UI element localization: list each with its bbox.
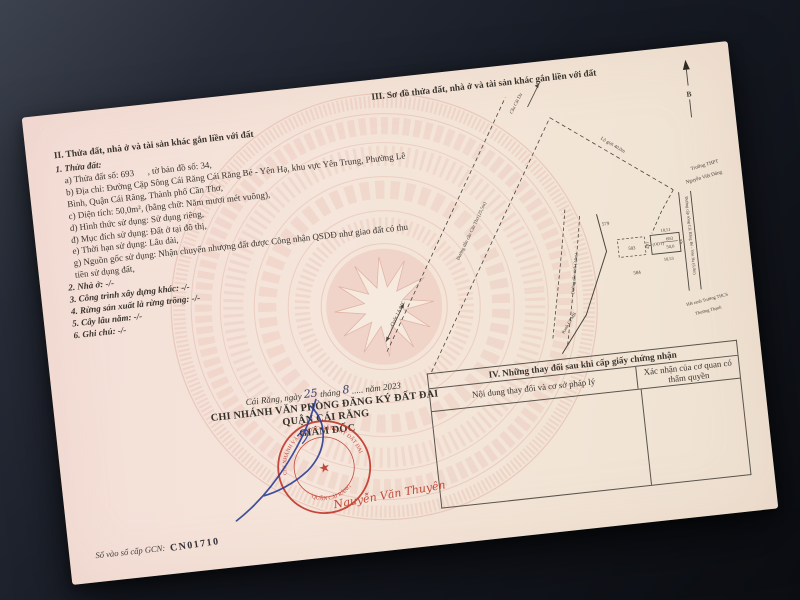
plot-edge-top: 10,51: [660, 227, 670, 234]
highway-label: Quốc Lộ 61C: [390, 300, 407, 327]
table-cell-empty-right: [642, 379, 751, 485]
corridor-label: Lộ giới 40,0m: [599, 137, 625, 155]
plot-edge-bottom: 10,53: [664, 256, 675, 263]
plot-number: 693: [666, 236, 674, 242]
signature-stroke-1: [255, 405, 329, 496]
plot-area: 50,0: [666, 243, 675, 250]
diagram-lines: [359, 59, 719, 376]
north-arrow-head: [682, 59, 690, 70]
bridge-road-line-2: [406, 118, 576, 372]
school-2-label-line-1: Hết ranh Trường THCS: [686, 291, 729, 306]
adjacent-plot-583: 583: [628, 246, 636, 252]
north-arrow-tail: [690, 99, 692, 117]
bridge-label: Cầu Cái Da: [509, 92, 524, 115]
local-road-label: Đường dân sinh (3,0m): [570, 252, 579, 294]
school-1-label-line-1: Trường THPT: [690, 159, 719, 172]
north-label: B: [686, 89, 692, 98]
plot-land-type: (ODT): [652, 241, 664, 247]
bridge-arrow: [525, 84, 541, 107]
corridor-line: [550, 105, 674, 202]
bridge-road-label: Đường dẫn cầu Cần Thơ (25,5m): [455, 201, 488, 262]
signature-ink: [214, 390, 367, 534]
adjacent-plot-579: 579: [602, 222, 610, 228]
certificate-page: II. Thửa đất, nhà ở và tài sản khác gắn …: [22, 41, 779, 585]
adjacent-plot-584: 584: [633, 271, 641, 277]
cadastral-diagram: B Cầu Cái Da Đường dẫn cầu Cần Thơ (25,5…: [339, 51, 757, 391]
signature-stroke-2: [224, 400, 328, 521]
school-2-label-line-2: Thường Thạnh: [695, 304, 723, 316]
bridge-road-line-1: [361, 97, 531, 351]
